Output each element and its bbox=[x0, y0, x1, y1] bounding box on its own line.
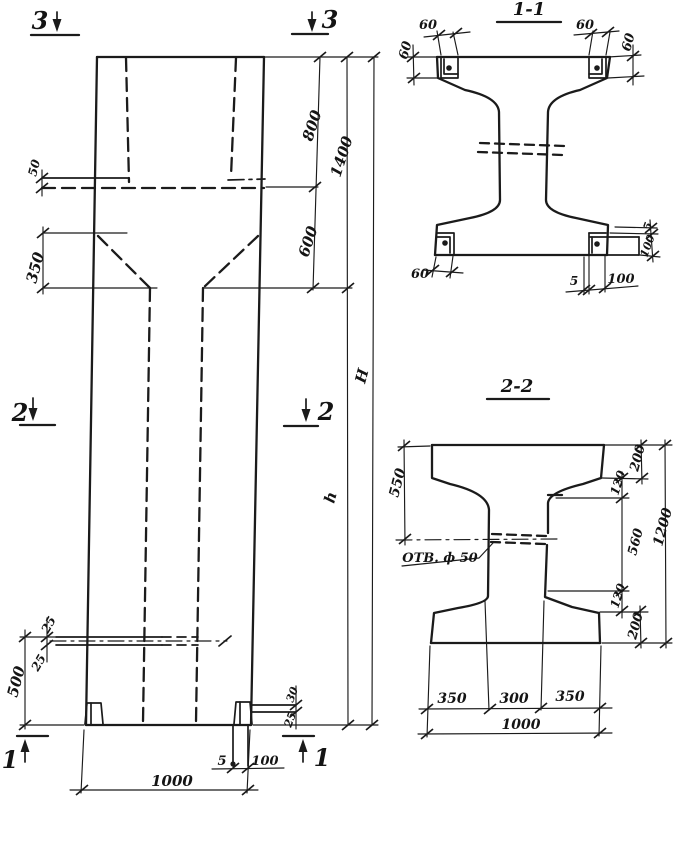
section-2-2-outline bbox=[431, 445, 604, 643]
section-markers: 3 3 2 2 1 bbox=[2, 5, 339, 774]
section-1-1-outline bbox=[435, 57, 610, 255]
section-1-1-web-dashes bbox=[478, 143, 565, 155]
dim-label-h: h bbox=[320, 490, 340, 505]
dim-label-200-bottom: 200 bbox=[625, 611, 647, 642]
dim-label-30: 30 bbox=[284, 685, 302, 704]
dim-label-550: 550 bbox=[386, 466, 409, 499]
dim-label-60-tr-h: 60 bbox=[576, 18, 594, 33]
dim-label-1000-section: 1000 bbox=[502, 717, 541, 733]
marker-1-right-label: 1 bbox=[314, 743, 331, 772]
elevation-view: 3 3 2 2 1 bbox=[2, 5, 380, 795]
marker-2-left-label: 2 bbox=[11, 398, 29, 427]
dim-label-1200: 1200 bbox=[650, 506, 676, 548]
dim-label-5: 5 bbox=[217, 754, 226, 769]
dim-label-300: 300 bbox=[499, 691, 528, 707]
dim-label-60-tl-h: 60 bbox=[419, 18, 437, 33]
dim-label-H: H bbox=[351, 366, 373, 386]
dim-label-100: 100 bbox=[251, 754, 278, 769]
marker-1-left-label: 1 bbox=[2, 745, 19, 774]
dim-label-25-upper: 25 bbox=[38, 614, 59, 636]
dim-label-350-right: 350 bbox=[555, 689, 584, 705]
dim-label-800: 800 bbox=[299, 107, 326, 143]
section-1-1-view: 1-1 bbox=[396, 0, 660, 295]
dim-label-60-bl: 60 bbox=[411, 267, 429, 282]
dim-label-200-top: 200 bbox=[627, 443, 649, 474]
section-2-2-dimension-labels: 550 200 120 560 120 200 1200 350 300 350… bbox=[386, 443, 676, 733]
section-2-2-hole-centerline bbox=[396, 539, 558, 540]
drawing-sheet: 3 3 2 2 1 bbox=[0, 0, 684, 842]
dim-label-560: 560 bbox=[625, 527, 647, 557]
section-2-2-title: 2-2 bbox=[500, 376, 534, 397]
dim-label-350: 350 bbox=[22, 250, 48, 285]
technical-drawing: 3 3 2 2 1 bbox=[0, 0, 684, 842]
marker-3-right-label: 3 bbox=[322, 5, 339, 34]
ledge-lines bbox=[42, 178, 265, 180]
marker-2-right bbox=[284, 399, 318, 426]
section-1-1-title: 1-1 bbox=[513, 0, 546, 20]
lifting-hole bbox=[50, 636, 231, 646]
marker-2-right-label: 2 bbox=[317, 397, 335, 426]
dim-label-120-lower: 120 bbox=[608, 581, 629, 610]
dim-label-350-left: 350 bbox=[437, 691, 466, 707]
dim-label-120-upper: 120 bbox=[608, 468, 629, 497]
elevation-dimension-labels: 50 350 800 1400 600 H h 25 25 500 30 25 … bbox=[3, 107, 372, 790]
column-outline bbox=[86, 57, 264, 725]
hole-diameter-label: ОТВ. ф 50 bbox=[402, 551, 477, 566]
dim-label-100-bottom: 100 bbox=[607, 272, 634, 287]
dim-label-5-bottom: 5 bbox=[570, 274, 578, 288]
dim-label-1000: 1000 bbox=[151, 772, 193, 790]
marker-3-left-label: 3 bbox=[32, 6, 49, 35]
dim-label-5-right: 5 bbox=[641, 220, 656, 232]
hidden-web-lines bbox=[42, 58, 264, 722]
dim-label-600: 600 bbox=[295, 223, 322, 259]
dim-label-1400: 1400 bbox=[327, 133, 357, 179]
marker-1-right bbox=[283, 736, 314, 762]
section-2-2-view: 2-2 bbox=[386, 376, 676, 739]
dim-label-25-lower: 25 bbox=[28, 652, 49, 674]
marker-1-left bbox=[17, 736, 48, 762]
dim-label-50: 50 bbox=[25, 157, 43, 177]
dim-label-60-tr-v: 60 bbox=[619, 32, 638, 53]
